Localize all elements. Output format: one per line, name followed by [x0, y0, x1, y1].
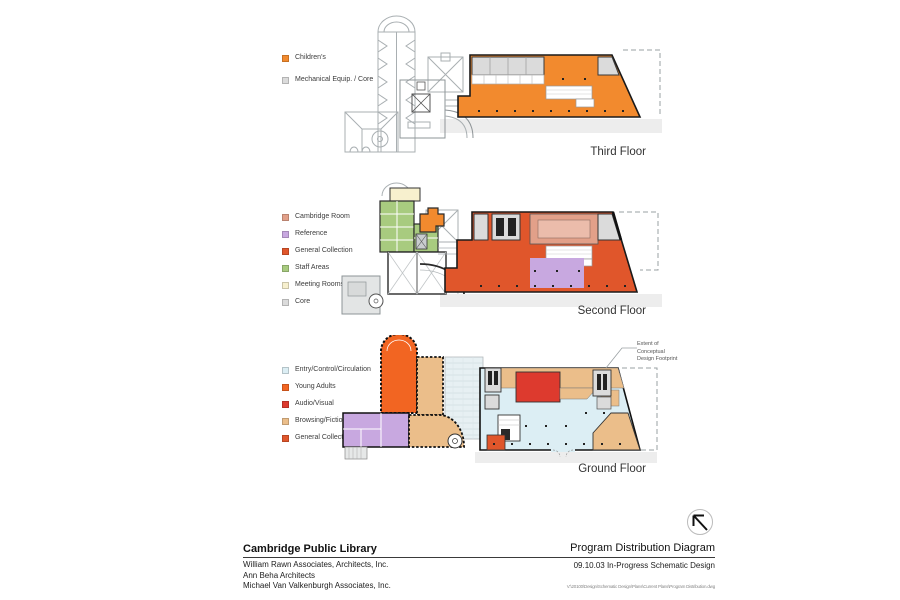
legend-swatch — [282, 55, 289, 62]
legend-swatch — [282, 231, 289, 238]
legend-label: Staff Areas — [295, 264, 329, 272]
legend-swatch — [282, 282, 289, 289]
mech-core-area — [598, 57, 619, 75]
project-title: Cambridge Public Library — [243, 543, 377, 555]
childrens-area-small — [420, 208, 444, 232]
footprint-annotation: Extent of Conceptual Design Footprint — [637, 341, 707, 364]
drawing-sheet: Children's Mechanical Equip. / Core Camb… — [0, 0, 900, 600]
sidewalk — [440, 119, 662, 133]
childrens-area — [458, 55, 640, 117]
core-area — [593, 370, 611, 396]
legend-swatch — [282, 418, 289, 425]
firm-name: William Rawn Associates, Architects, Inc… — [243, 560, 391, 571]
legend-label: Young Adults — [295, 383, 336, 391]
architect-firms: William Rawn Associates, Architects, Inc… — [243, 560, 391, 592]
legend-swatch — [282, 435, 289, 442]
firm-name: Michael Van Valkenburgh Associates, Inc. — [243, 581, 391, 592]
ground-floor-label: Ground Floor — [578, 463, 646, 475]
meeting-rooms-area — [390, 188, 420, 201]
firm-name: Ann Beha Architects — [243, 571, 391, 582]
core-area — [485, 368, 501, 392]
reference-area — [343, 413, 409, 447]
young-adults-area — [381, 335, 417, 413]
third-floor-plan — [340, 12, 665, 162]
second-floor-label: Second Floor — [578, 305, 646, 317]
browsing-fiction-area — [417, 357, 443, 415]
legend-label: Core — [295, 298, 310, 306]
legend-swatch — [282, 214, 289, 221]
legend-label: Children's — [295, 54, 326, 62]
sidewalk — [475, 452, 657, 463]
entry-control-circulation-area — [480, 368, 640, 457]
file-path: V:\20100\Design\Schematic Design\Plans\C… — [415, 584, 715, 589]
legend-label: Audio/Visual — [295, 400, 334, 408]
north-arrow-icon — [683, 505, 717, 539]
legend-label: Meeting Rooms — [295, 281, 344, 289]
legend-swatch — [282, 401, 289, 408]
legend-swatch — [282, 384, 289, 391]
core-area — [474, 214, 488, 240]
general-collection-area — [445, 212, 637, 292]
legend-swatch — [282, 265, 289, 272]
reference-area — [530, 258, 584, 288]
audio-visual-area — [516, 372, 560, 402]
title-block-rule — [243, 557, 715, 558]
third-floor-label: Third Floor — [590, 146, 646, 158]
phase-label: 09.10.03 In-Progress Schematic Design — [415, 561, 715, 570]
annotation-leader-line — [606, 348, 637, 368]
general-collection-area — [487, 435, 505, 450]
legend-swatch — [282, 367, 289, 374]
legend-label: Reference — [295, 230, 327, 238]
legend-swatch — [282, 299, 289, 306]
legend-swatch — [282, 77, 289, 84]
legend-swatch — [282, 248, 289, 255]
sheet-title: Program Distribution Diagram — [415, 542, 715, 554]
